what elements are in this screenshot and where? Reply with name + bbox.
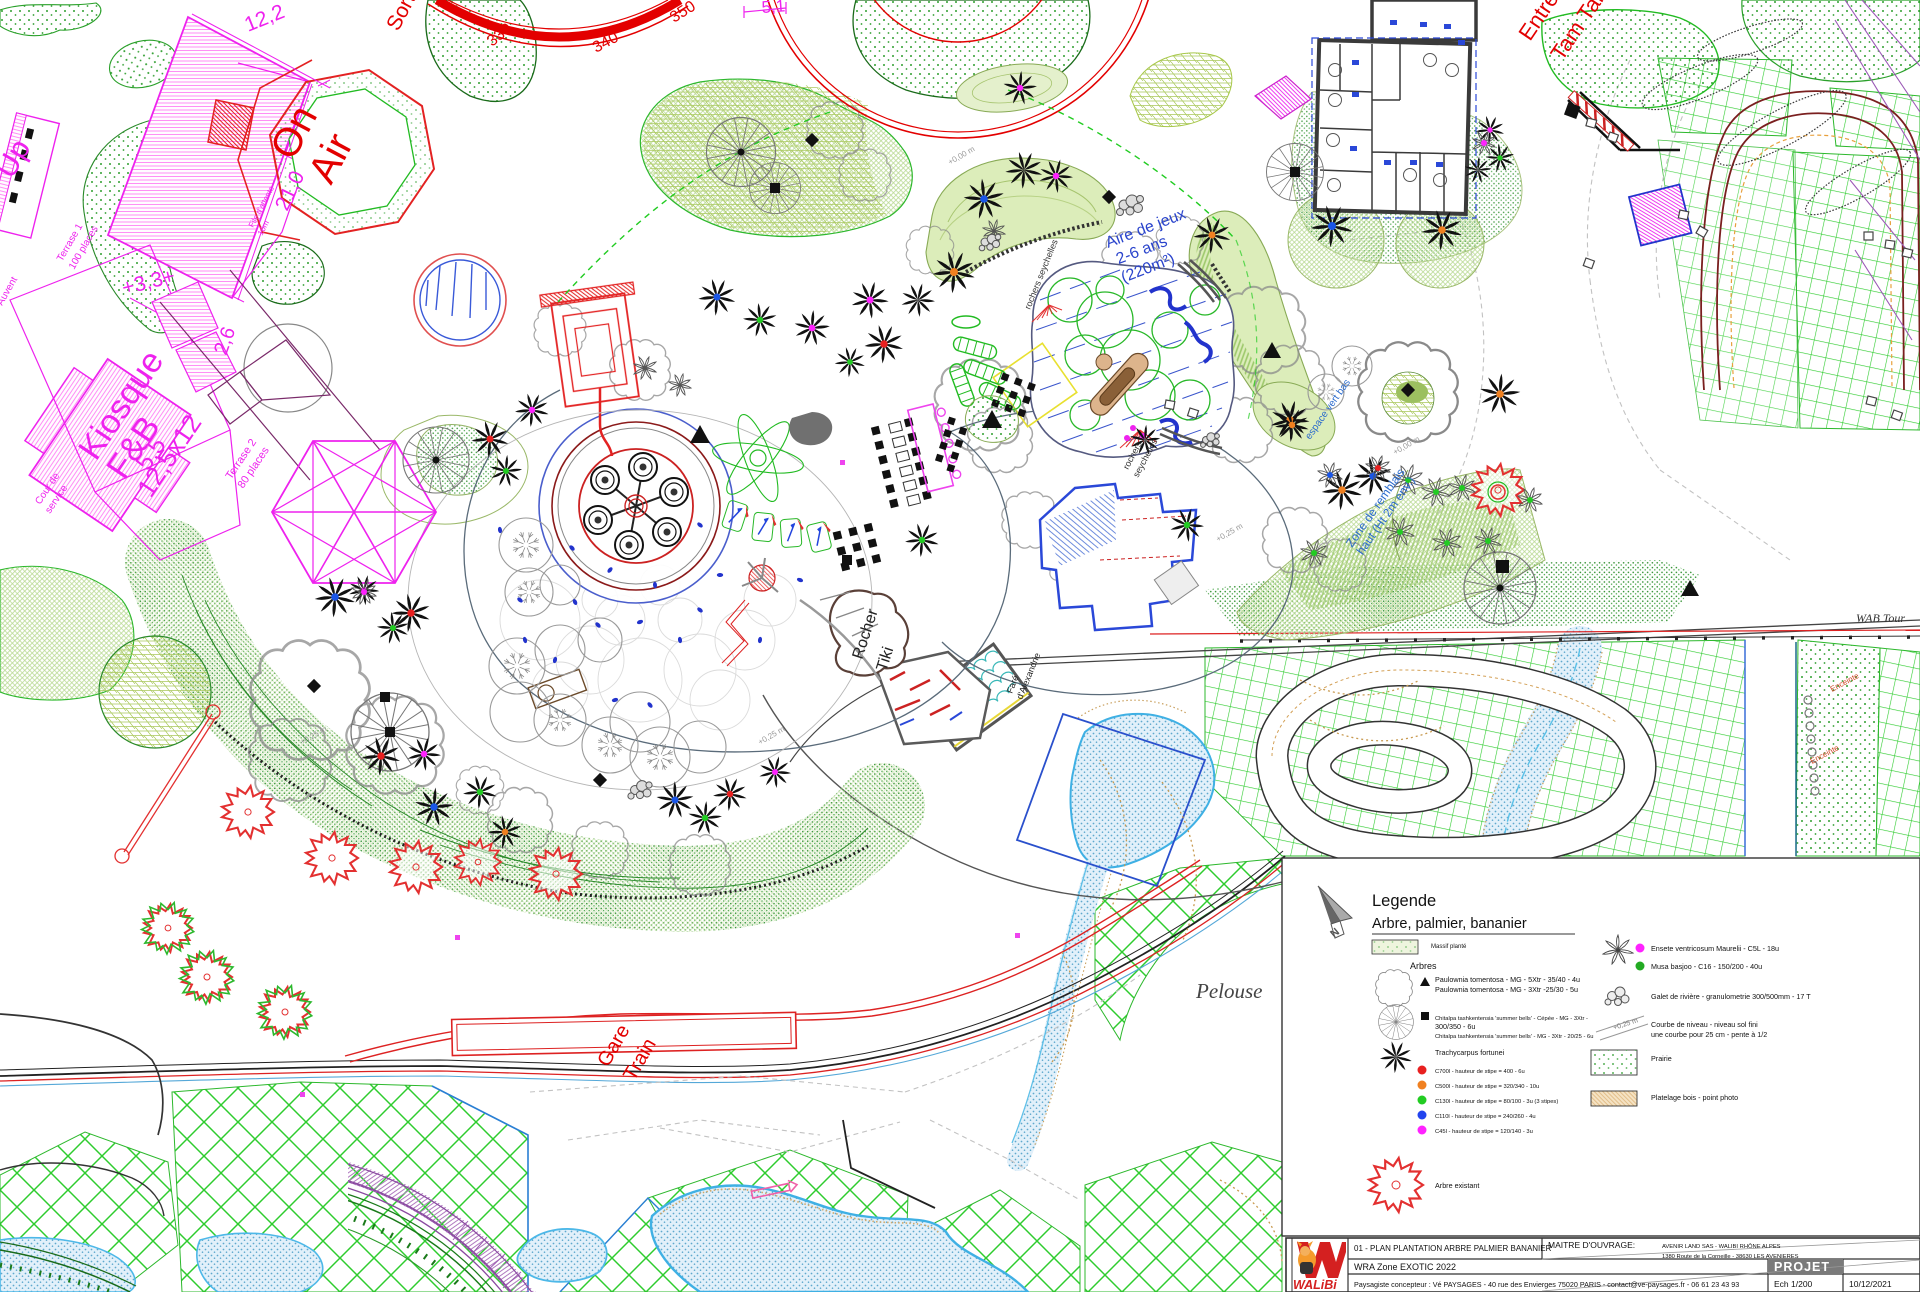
svg-text:C110l - hauteur de stipe = 240: C110l - hauteur de stipe = 240/260 - 4u [1435, 1114, 1536, 1120]
svg-text:Arbre, palmier, bananier: Arbre, palmier, bananier [1372, 916, 1527, 932]
svg-text:300/350 - 6u: 300/350 - 6u [1435, 1022, 1475, 1031]
svg-text:Paulownia tomentosa - MG - 5Xt: Paulownia tomentosa - MG - 5Xtr - 35/40 … [1435, 975, 1580, 984]
svg-text:WRA Zone EXOTIC 2022: WRA Zone EXOTIC 2022 [1354, 1262, 1456, 1272]
svg-text:MAITRE D'OUVRAGE:: MAITRE D'OUVRAGE: [1548, 1240, 1635, 1250]
svg-text:C500l - hauteur de stipe = 320: C500l - hauteur de stipe = 320/340 - 10u [1435, 1084, 1539, 1090]
svg-text:Galet de rivière - granulometr: Galet de rivière - granulometrie 300/500… [1651, 992, 1811, 1001]
svg-text:une courbe pour 25 cm - pente: une courbe pour 25 cm - pente à 1/2 [1651, 1030, 1767, 1039]
svg-text:Paysagiste concepteur : Vé PAY: Paysagiste concepteur : Vé PAYSAGES - 40… [1354, 1280, 1739, 1289]
svg-text:C700l - hauteur de stipe = 400: C700l - hauteur de stipe = 400 - 6u [1435, 1069, 1525, 1075]
svg-text:5,1: 5,1 [761, 0, 786, 17]
svg-text:Ech 1/200: Ech 1/200 [1774, 1279, 1813, 1289]
svg-text:WAB Tour: WAB Tour [1856, 611, 1905, 625]
svg-text:AVENIR LAND SAS - WALIBI RHÔNE: AVENIR LAND SAS - WALIBI RHÔNE ALPES [1662, 1243, 1781, 1250]
svg-text:Massif planté: Massif planté [1431, 944, 1467, 950]
svg-text:Platelage bois - point photo: Platelage bois - point photo [1651, 1093, 1738, 1102]
svg-text:Courbe de niveau - niveau sol: Courbe de niveau - niveau sol fini [1651, 1020, 1758, 1029]
svg-text:Arbre existant: Arbre existant [1435, 1181, 1479, 1190]
svg-text:WALiBi: WALiBi [1293, 1278, 1337, 1292]
svg-text:Ensete ventricosum Maurelii -: Ensete ventricosum Maurelii - C5L - 18u [1651, 944, 1779, 953]
svg-text:10/12/2021: 10/12/2021 [1849, 1279, 1892, 1289]
svg-text:Paulownia tomentosa - MG - 3Xt: Paulownia tomentosa - MG - 3Xtr -25/30 -… [1435, 985, 1578, 994]
svg-text:01 - PLAN PLANTATION ARBRE PAL: 01 - PLAN PLANTATION ARBRE PALMIER BANAN… [1354, 1244, 1552, 1253]
svg-text:C45l - hauteur de stipe = 120/: C45l - hauteur de stipe = 120/140 - 3u [1435, 1129, 1533, 1135]
svg-text:Pelouse: Pelouse [1195, 979, 1262, 1003]
svg-text:C130l - hauteur de stipe = 80/: C130l - hauteur de stipe = 80/100 - 3u (… [1435, 1099, 1558, 1105]
svg-text:Trachycarpus fortunei: Trachycarpus fortunei [1435, 1048, 1505, 1057]
svg-text:Prairie: Prairie [1651, 1054, 1672, 1063]
svg-text:PROJET: PROJET [1774, 1260, 1830, 1274]
svg-text:Arbres: Arbres [1410, 961, 1437, 971]
svg-text:Legende: Legende [1372, 892, 1436, 910]
svg-text:Musa basjoo - C16 - 150/200 -: Musa basjoo - C16 - 150/200 - 40u [1651, 962, 1762, 971]
svg-text:Chitalpa tashkentensia 'summer: Chitalpa tashkentensia 'summer bells' - … [1435, 1034, 1593, 1040]
